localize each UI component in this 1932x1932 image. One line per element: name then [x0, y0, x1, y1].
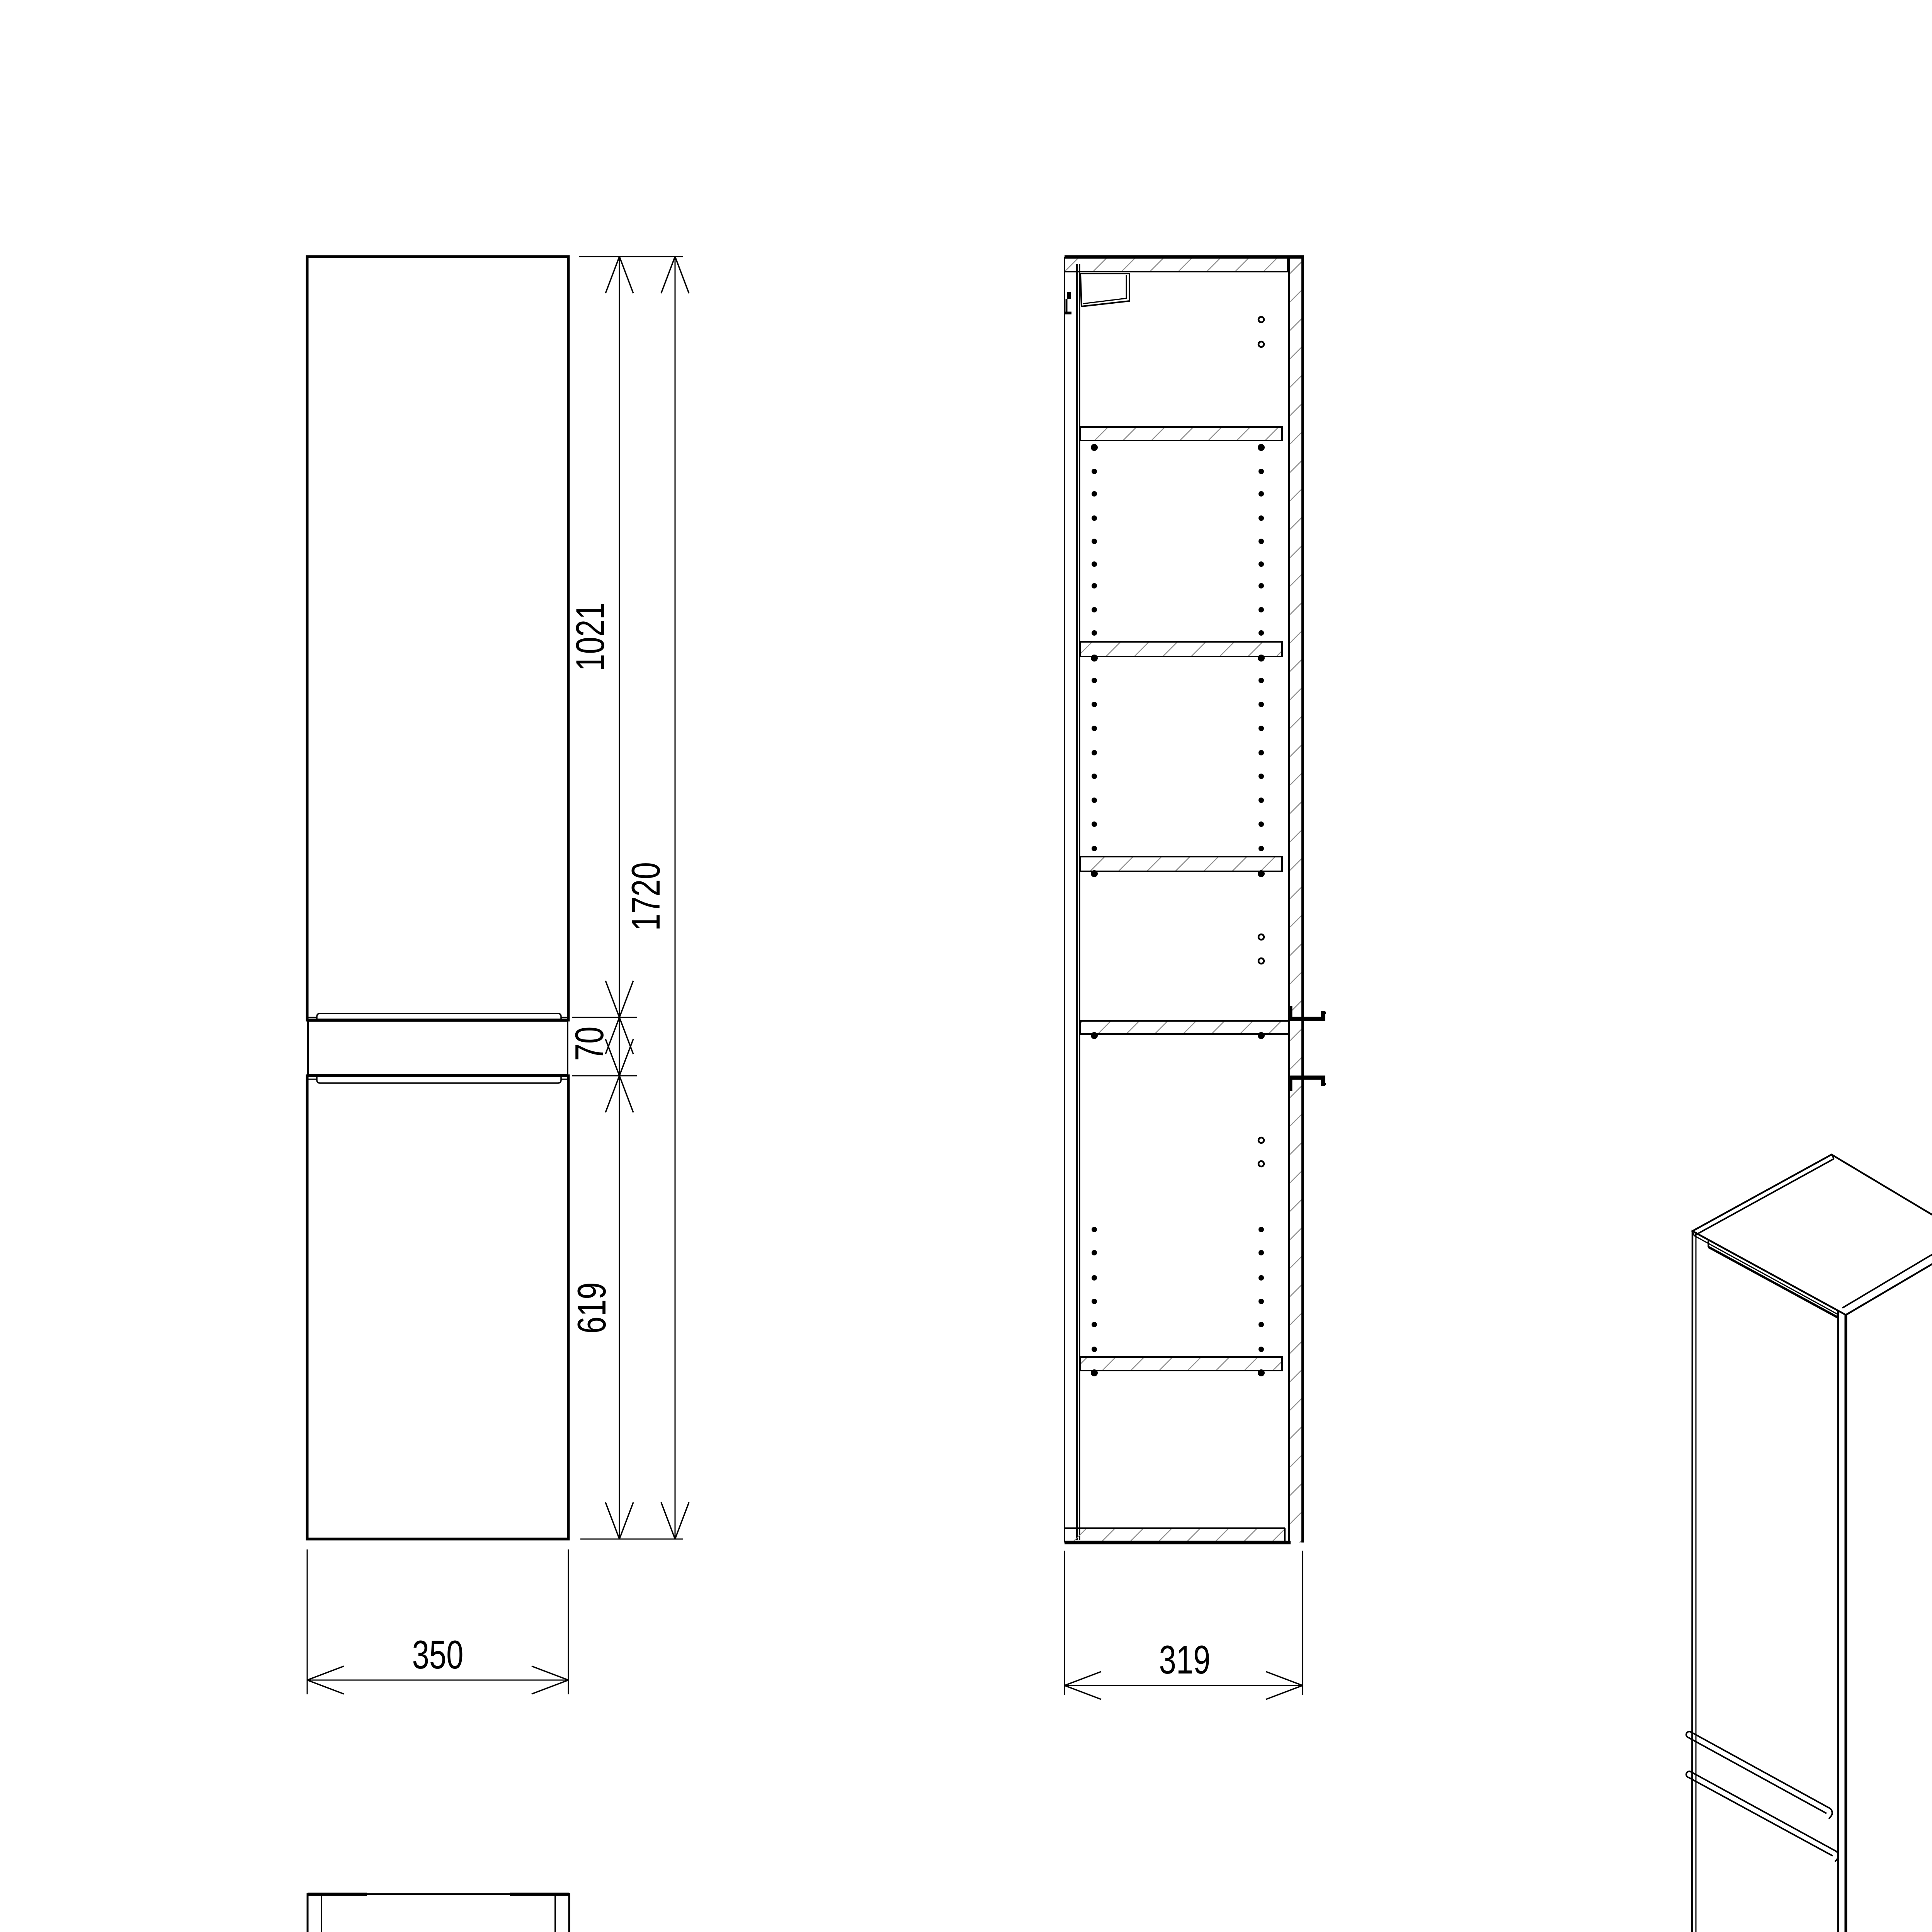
svg-text:319: 319	[1159, 1638, 1211, 1682]
svg-text:1720: 1720	[624, 862, 668, 931]
svg-text:70: 70	[567, 1027, 612, 1061]
svg-text:1021: 1021	[568, 602, 613, 671]
svg-text:619: 619	[570, 1282, 614, 1334]
svg-text:350: 350	[412, 1633, 464, 1677]
